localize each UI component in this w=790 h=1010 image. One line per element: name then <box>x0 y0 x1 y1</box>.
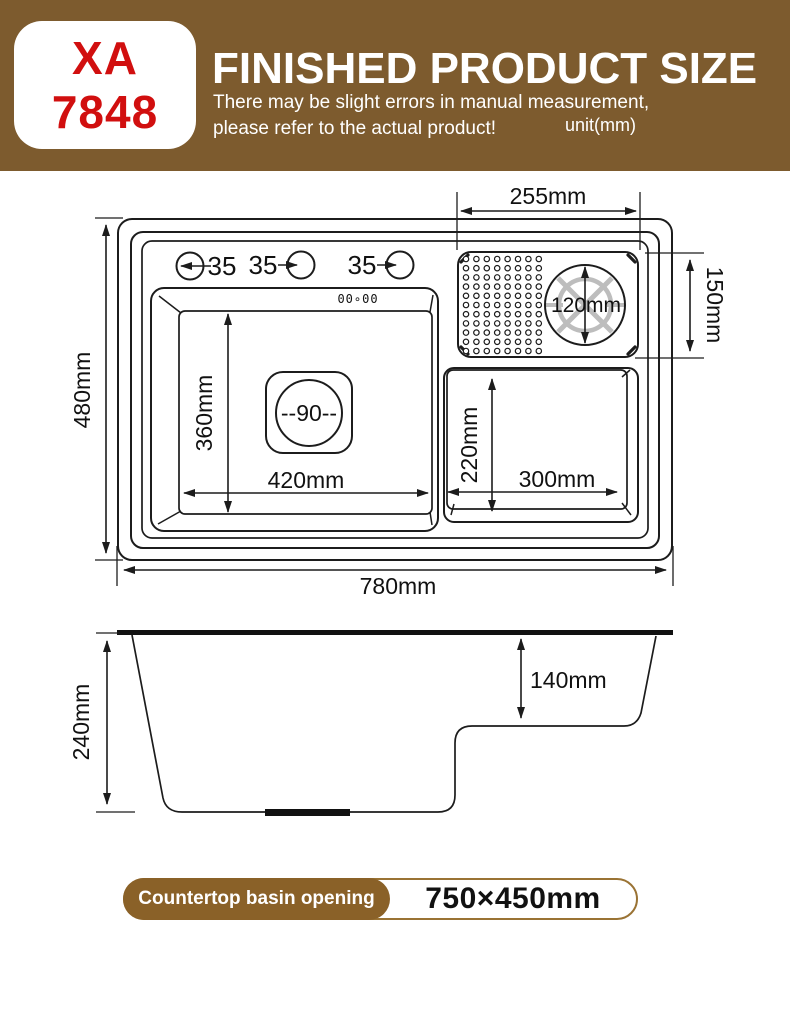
sink-profile <box>132 635 656 812</box>
dim-main-basin-depth: 360mm <box>191 314 228 512</box>
sink-dimension-diagram: 35 35 35 00∘00 <box>0 0 790 1010</box>
page: XA 7848 FINISHED PRODUCT SIZE There may … <box>0 0 790 1010</box>
tray-perforation-dots <box>463 256 541 353</box>
dim-overall-depth: 480mm <box>69 218 123 560</box>
dim-main-basin-width-label: 420mm <box>268 467 345 493</box>
dim-total-depth-label: 240mm <box>68 684 94 761</box>
countertop-bar <box>117 630 673 635</box>
dim-tray-width: 255mm <box>457 183 640 250</box>
dim-tray-depth: 150mm <box>635 253 728 358</box>
faucet-hole-1-label: 35 <box>208 251 237 281</box>
main-drain-hole: --90-- <box>266 372 352 453</box>
dim-overall-width-label: 780mm <box>360 573 437 599</box>
dim-overall-width: 780mm <box>117 546 673 599</box>
countertop-opening-pill: Countertop basin opening 750×450mm <box>123 878 638 920</box>
temperature-display: 00∘00 <box>337 292 378 306</box>
dim-strainer-diameter: 120mm <box>551 294 621 317</box>
dim-step-depth: 140mm <box>521 639 607 718</box>
dim-overall-depth-label: 480mm <box>69 352 95 429</box>
faucet-hole-3-label: 35 <box>348 250 377 280</box>
side-view-diagram: 240mm 140mm <box>68 630 673 816</box>
strainer-basket: 120mm <box>545 265 625 345</box>
countertop-opening-label: Countertop basin opening <box>123 878 390 920</box>
faucet-hole-2-label: 35 <box>249 250 278 280</box>
dim-small-basin-width-label: 300mm <box>519 466 596 492</box>
drain-tray: 120mm <box>458 252 638 357</box>
drain-diameter-label: --90-- <box>281 400 337 426</box>
dim-total-depth: 240mm <box>68 633 135 812</box>
dim-tray-depth-label: 150mm <box>702 267 728 344</box>
dim-main-basin-depth-label: 360mm <box>191 375 217 452</box>
bottom-drain-stub <box>265 809 350 816</box>
dim-step-depth-label: 140mm <box>530 667 607 693</box>
countertop-opening-value: 750×450mm <box>390 880 636 918</box>
faucet-holes: 35 35 35 <box>177 250 414 281</box>
top-view-diagram: 35 35 35 00∘00 <box>69 183 728 599</box>
dim-tray-width-label: 255mm <box>510 183 587 209</box>
dim-small-basin-depth-label: 220mm <box>456 407 482 484</box>
dim-main-basin-width: 420mm <box>184 467 428 493</box>
